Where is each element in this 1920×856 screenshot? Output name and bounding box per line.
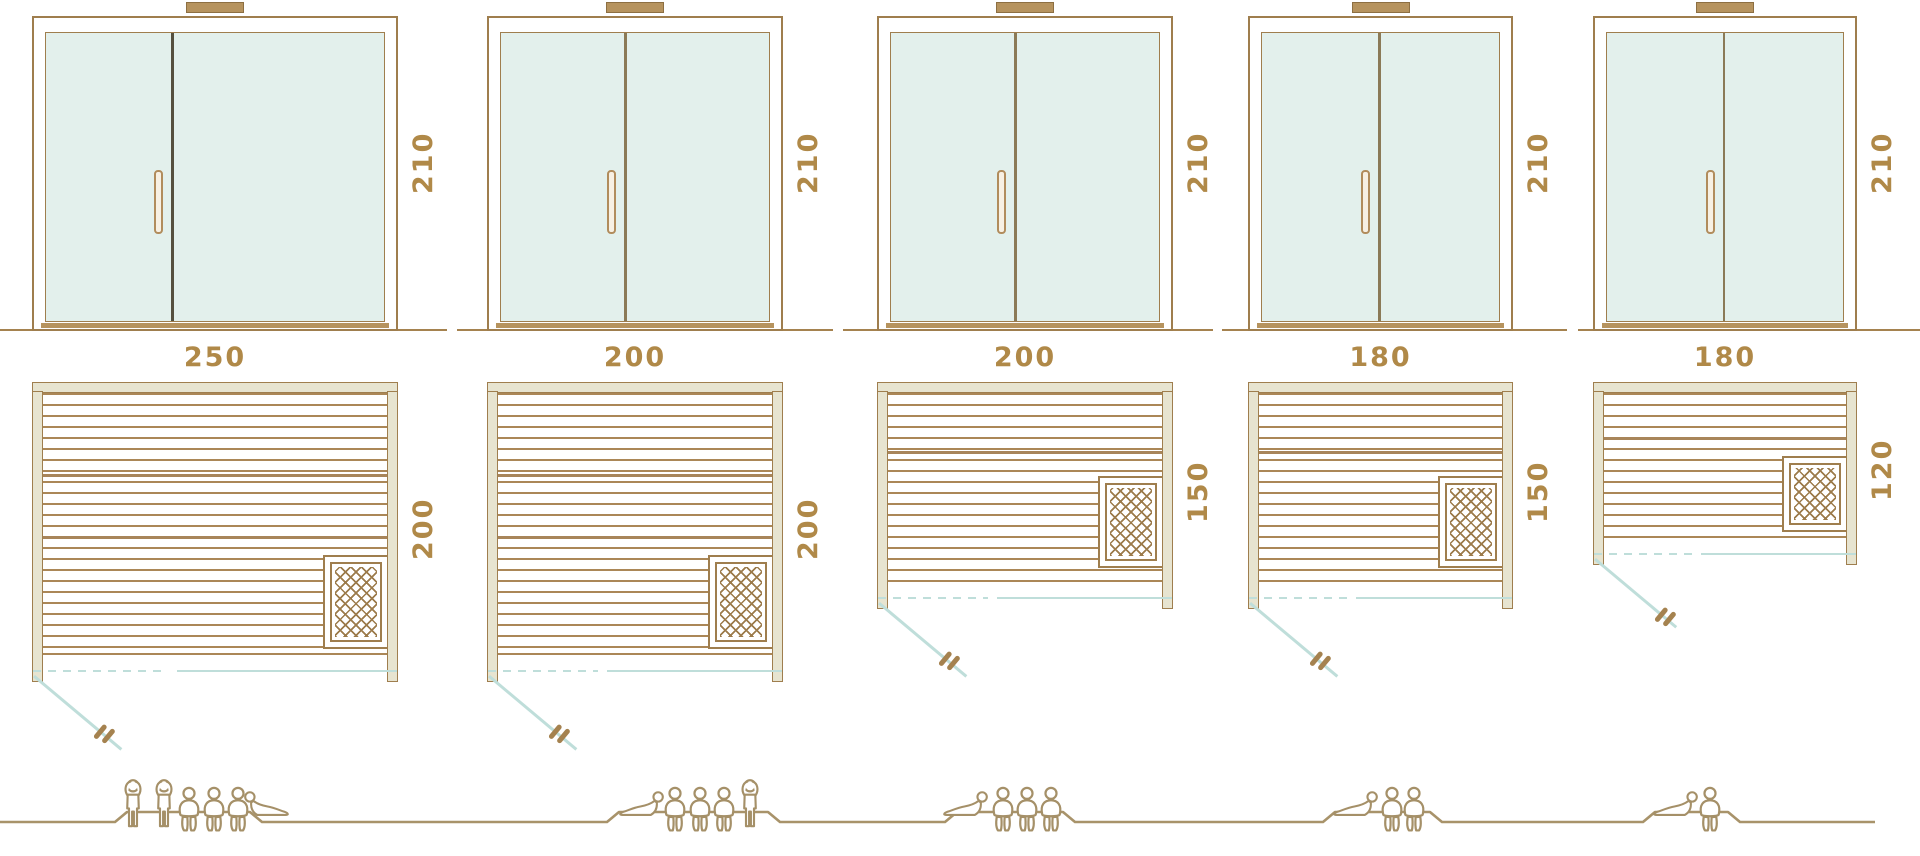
heater-enclosure	[1098, 476, 1162, 568]
heater-enclosure	[1782, 456, 1846, 532]
door-threshold	[1257, 323, 1504, 328]
wall-top	[1248, 382, 1513, 393]
person-seated-icon	[180, 788, 199, 831]
plan-depth-dimension: 200	[406, 479, 442, 579]
bench-front-line	[888, 580, 1162, 583]
door-height-dimension: 210	[406, 113, 442, 213]
wall-left	[32, 391, 43, 682]
wall-top	[1593, 382, 1857, 393]
sauna-column-200x150: 210 200 150	[877, 0, 1173, 856]
glass-front	[1261, 32, 1500, 322]
heater-enclosure	[708, 555, 772, 649]
glass-wall-line	[1701, 553, 1856, 556]
door-handle-icon	[1361, 170, 1370, 234]
door-opening-dashed-line	[488, 670, 598, 673]
person-standing-icon	[126, 780, 141, 826]
door-height-dimension: 210	[791, 113, 827, 213]
wall-right	[387, 391, 398, 682]
person-seated-icon	[229, 788, 248, 831]
heater-icon	[1789, 463, 1841, 525]
plan-depth-dimension: 150	[1181, 442, 1217, 542]
door-divider	[1014, 33, 1017, 321]
door-opening-dashed-line	[1249, 597, 1347, 600]
door-threshold	[886, 323, 1164, 328]
person-seated-icon	[691, 788, 710, 831]
bench-front-line	[498, 653, 772, 656]
wall-left	[877, 391, 888, 609]
person-seated-icon	[1701, 788, 1720, 831]
wall-right	[772, 391, 783, 682]
plan-width-dimension: 180	[1248, 342, 1513, 373]
door-divider	[171, 33, 174, 321]
door-divider	[1378, 33, 1381, 321]
sauna-column-180x150: 210 180 150	[1248, 0, 1513, 856]
person-seated-icon	[1383, 788, 1402, 831]
floor-plan	[32, 382, 398, 675]
door-swing-line	[1251, 602, 1338, 675]
person-seated-icon	[666, 788, 685, 831]
door-handle-icon	[997, 170, 1006, 234]
door-elevation	[487, 16, 783, 331]
wall-left	[1248, 391, 1259, 609]
glass-front	[45, 32, 385, 322]
person-standing-icon	[743, 780, 758, 826]
door-divider	[624, 33, 627, 321]
door-opening-dashed-line	[1594, 553, 1692, 556]
plan-width-dimension: 180	[1593, 342, 1857, 373]
door-handle-icon	[607, 170, 616, 234]
door-height-dimension: 210	[1181, 113, 1217, 213]
heater-icon	[1105, 483, 1157, 561]
door-swing-line	[35, 675, 122, 748]
sauna-column-200x200: 210 200 200	[487, 0, 783, 856]
door-opening-dashed-line	[33, 670, 168, 673]
person-seated-icon	[205, 788, 224, 831]
bench-edge-line	[43, 536, 387, 539]
bench-front-line	[1604, 536, 1846, 539]
glass-wall-line	[997, 597, 1172, 600]
door-elevation	[1593, 16, 1857, 331]
sauna-column-180x120: 210 180 120	[1593, 0, 1857, 856]
glass-front	[1606, 32, 1844, 322]
roof-vent-icon	[1352, 2, 1410, 13]
capacity-figures-layer	[0, 770, 1920, 856]
heater-icon	[715, 562, 767, 642]
plan-depth-dimension: 200	[791, 479, 827, 579]
door-opening-dashed-line	[878, 597, 988, 600]
door-swing-line	[490, 675, 577, 748]
door-swing-line	[1596, 558, 1677, 626]
heater-icon	[330, 562, 382, 642]
door-handle-icon	[1706, 170, 1715, 234]
glass-wall-line	[1356, 597, 1512, 600]
wall-top	[877, 382, 1173, 393]
wall-top	[487, 382, 783, 393]
person-seated-icon	[1018, 788, 1037, 831]
wall-left	[1593, 391, 1604, 565]
plan-width-dimension: 250	[32, 342, 398, 373]
roof-vent-icon	[606, 2, 664, 13]
person-lying-icon	[245, 792, 288, 815]
bench-edge-line	[498, 474, 772, 477]
wall-left	[487, 391, 498, 682]
sauna-size-diagram: 210 250 200	[0, 0, 1920, 856]
person-seated-icon	[715, 788, 734, 831]
floor-plan	[487, 382, 783, 675]
door-threshold	[41, 323, 389, 328]
plan-width-dimension: 200	[487, 342, 783, 373]
wall-right	[1846, 391, 1857, 565]
door-elevation	[32, 16, 398, 331]
door-divider	[1723, 33, 1726, 321]
door-threshold	[496, 323, 774, 328]
plan-depth-dimension: 150	[1521, 442, 1557, 542]
glass-wall-line	[177, 670, 397, 673]
floor-plan	[877, 382, 1173, 602]
glass-front	[890, 32, 1160, 322]
roof-vent-icon	[186, 2, 244, 13]
heater-icon	[1445, 483, 1497, 561]
person-seated-icon	[1405, 788, 1424, 831]
wall-right	[1162, 391, 1173, 609]
heater-enclosure	[1438, 476, 1502, 568]
person-seated-icon	[994, 788, 1013, 831]
door-swing-line	[1594, 558, 1677, 628]
glass-wall-line	[607, 670, 782, 673]
bench-front-line	[43, 653, 387, 656]
door-elevation	[877, 16, 1173, 331]
door-swing-line	[880, 602, 967, 675]
sauna-column-250x200: 210 250 200	[32, 0, 398, 856]
door-height-dimension: 210	[1865, 113, 1901, 213]
roof-vent-icon	[996, 2, 1054, 13]
person-standing-icon	[157, 780, 172, 826]
floor-plan	[1248, 382, 1513, 602]
wall-right	[1502, 391, 1513, 609]
door-handle-icon	[154, 170, 163, 234]
bench-edge-line	[1604, 437, 1846, 440]
bench-edge-line	[888, 451, 1162, 454]
glass-front	[500, 32, 770, 322]
floor-plan	[1593, 382, 1857, 558]
heater-enclosure	[323, 555, 387, 649]
plan-depth-dimension: 120	[1865, 420, 1901, 520]
door-threshold	[1602, 323, 1848, 328]
bench-front-line	[1259, 580, 1502, 583]
door-elevation	[1248, 16, 1513, 331]
bench-edge-line	[1259, 451, 1502, 454]
bench-edge-line	[43, 474, 387, 477]
bench-edge-line	[498, 536, 772, 539]
person-seated-icon	[1042, 788, 1061, 831]
wall-top	[32, 382, 398, 393]
door-height-dimension: 210	[1521, 113, 1557, 213]
plan-width-dimension: 200	[877, 342, 1173, 373]
roof-vent-icon	[1696, 2, 1754, 13]
